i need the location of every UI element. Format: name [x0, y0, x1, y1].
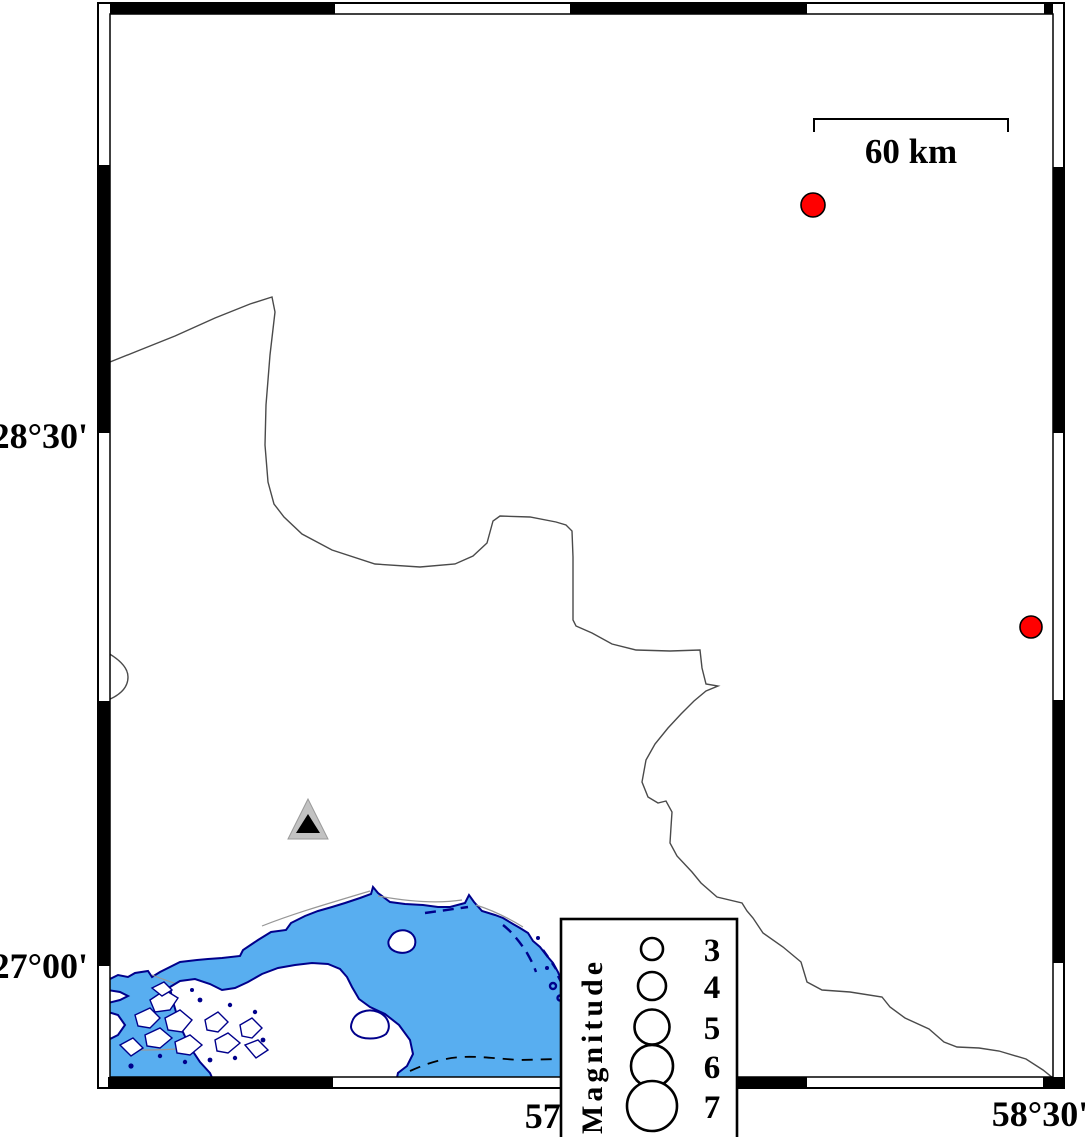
boundary-bump-west — [108, 653, 128, 700]
legend-magnitude-value: 5 — [704, 1011, 721, 1047]
small-island-mid — [351, 1010, 389, 1038]
station-triangle-marker — [288, 799, 328, 839]
legend-magnitude-value: 4 — [704, 970, 721, 1006]
lon-label-58-30: 58°30' — [992, 1094, 1085, 1134]
epicenter-marker — [801, 193, 825, 217]
legend-magnitude-value: 6 — [704, 1050, 721, 1086]
lat-label-27-00: 27°00' — [0, 946, 88, 986]
legend-magnitude-circle — [641, 938, 663, 960]
map-page: 60 km 28°30' 27°00' 57°00' 58°30' Magnit… — [0, 0, 1085, 1137]
scale-bar: 60 km — [814, 119, 1008, 171]
legend-magnitude-circle — [627, 1081, 677, 1131]
legend-title: Magnitude — [576, 958, 609, 1134]
map-canvas: 60 km 28°30' 27°00' 57°00' 58°30' Magnit… — [0, 0, 1085, 1137]
scale-bar-label: 60 km — [865, 132, 957, 171]
magnitude-legend: Magnitude 34567 — [561, 919, 737, 1137]
legend-magnitude-value: 3 — [704, 933, 721, 969]
legend-magnitude-circle — [635, 1010, 670, 1045]
epicenter-markers — [801, 193, 1042, 638]
small-island-north — [388, 930, 415, 953]
epicenter-marker — [1020, 616, 1042, 638]
legend-magnitude-value: 7 — [704, 1090, 721, 1126]
legend-magnitude-circle — [638, 972, 666, 1000]
lat-label-28-30: 28°30' — [0, 416, 88, 456]
